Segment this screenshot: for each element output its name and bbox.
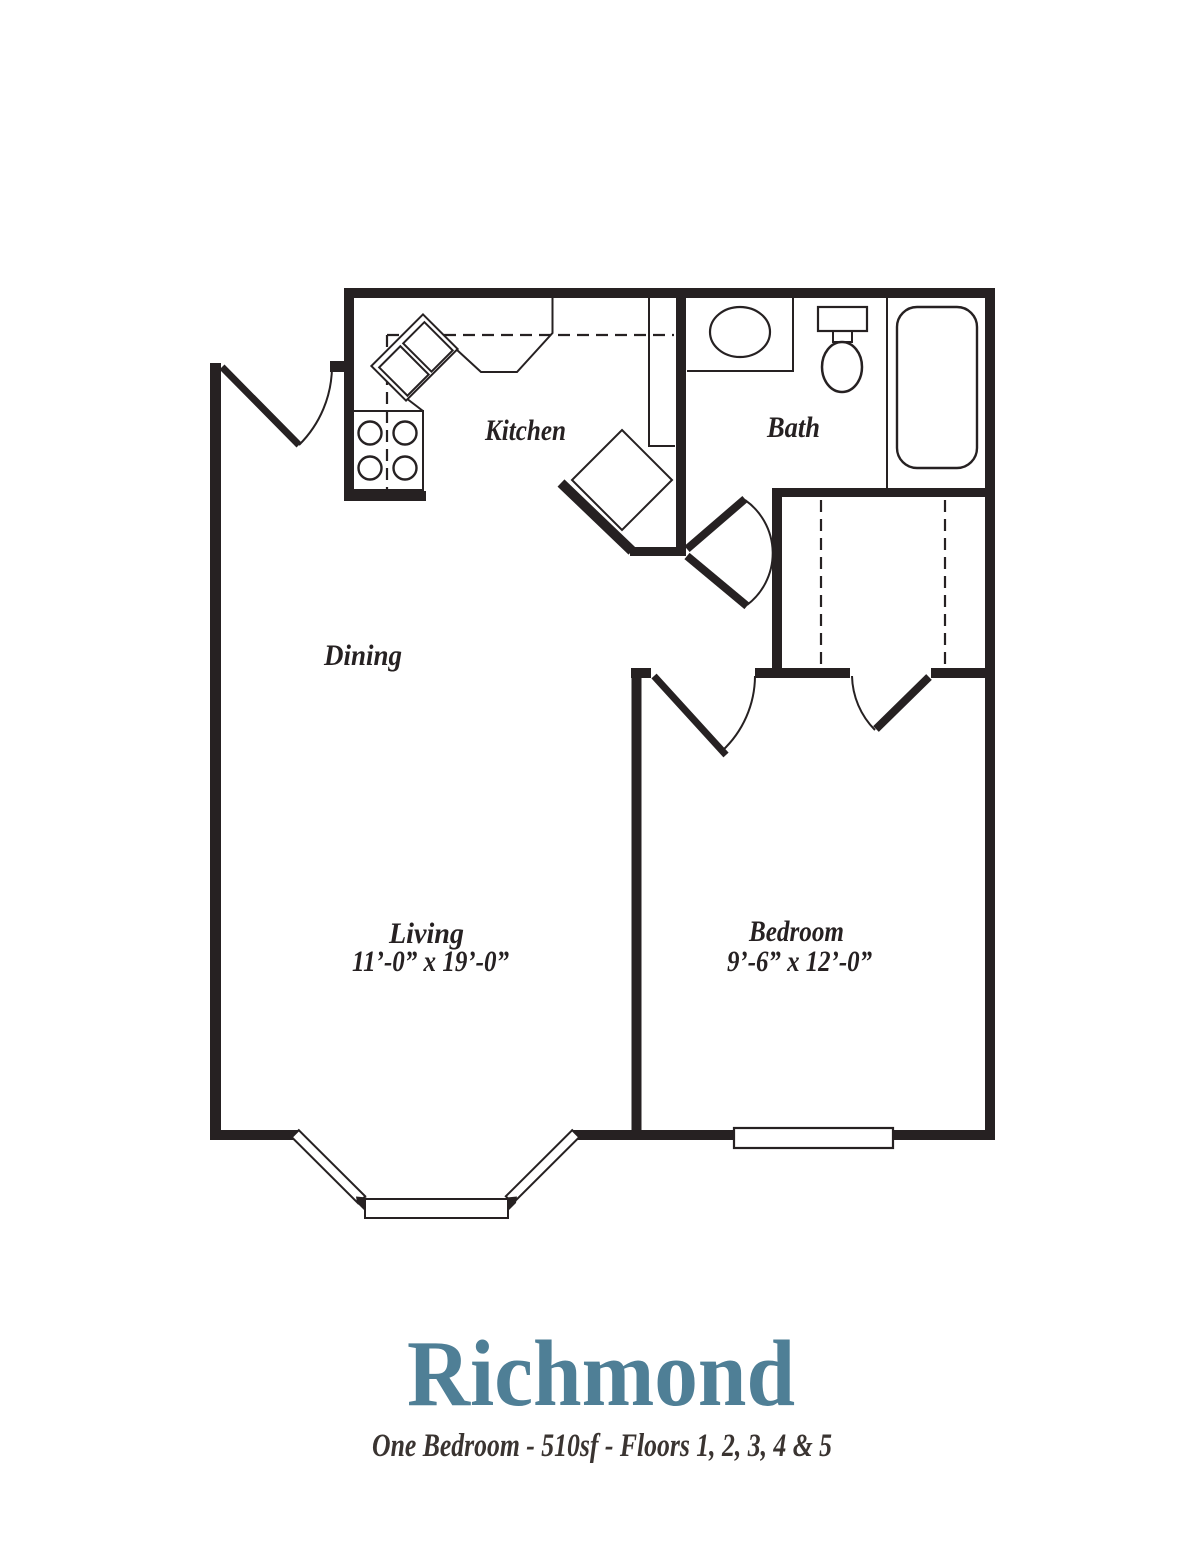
svg-text:11’-0” x 19’-0”: 11’-0” x 19’-0”: [352, 945, 509, 978]
svg-text:Bath: Bath: [766, 411, 820, 444]
svg-text:Dining: Dining: [323, 639, 402, 672]
svg-text:Richmond: Richmond: [407, 1322, 795, 1426]
svg-text:Kitchen: Kitchen: [484, 414, 566, 447]
svg-text:Bedroom: Bedroom: [748, 915, 844, 948]
svg-text:One Bedroom - 510sf - Floors 1: One Bedroom - 510sf - Floors 1, 2, 3, 4 …: [372, 1428, 832, 1464]
svg-text:9’-6” x 12’-0”: 9’-6” x 12’-0”: [727, 945, 872, 978]
